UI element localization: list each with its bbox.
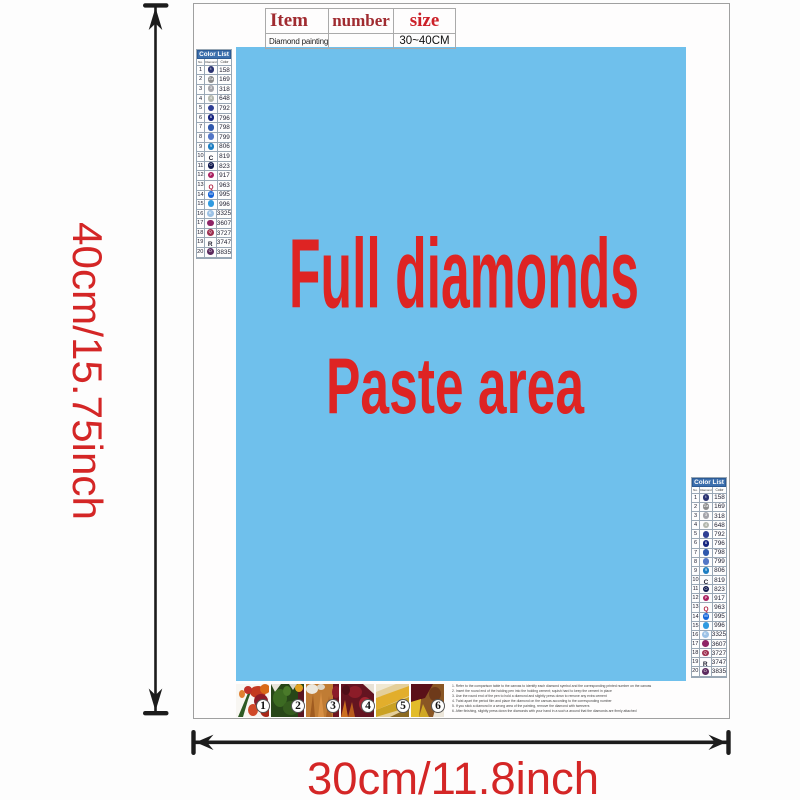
svg-text:Full diamonds: Full diamonds <box>289 219 639 329</box>
svg-text:Paste area: Paste area <box>326 341 585 430</box>
svg-text:30cm/11.8inch: 30cm/11.8inch <box>307 753 599 800</box>
svg-text:40cm/15.75inch: 40cm/15.75inch <box>64 222 111 520</box>
